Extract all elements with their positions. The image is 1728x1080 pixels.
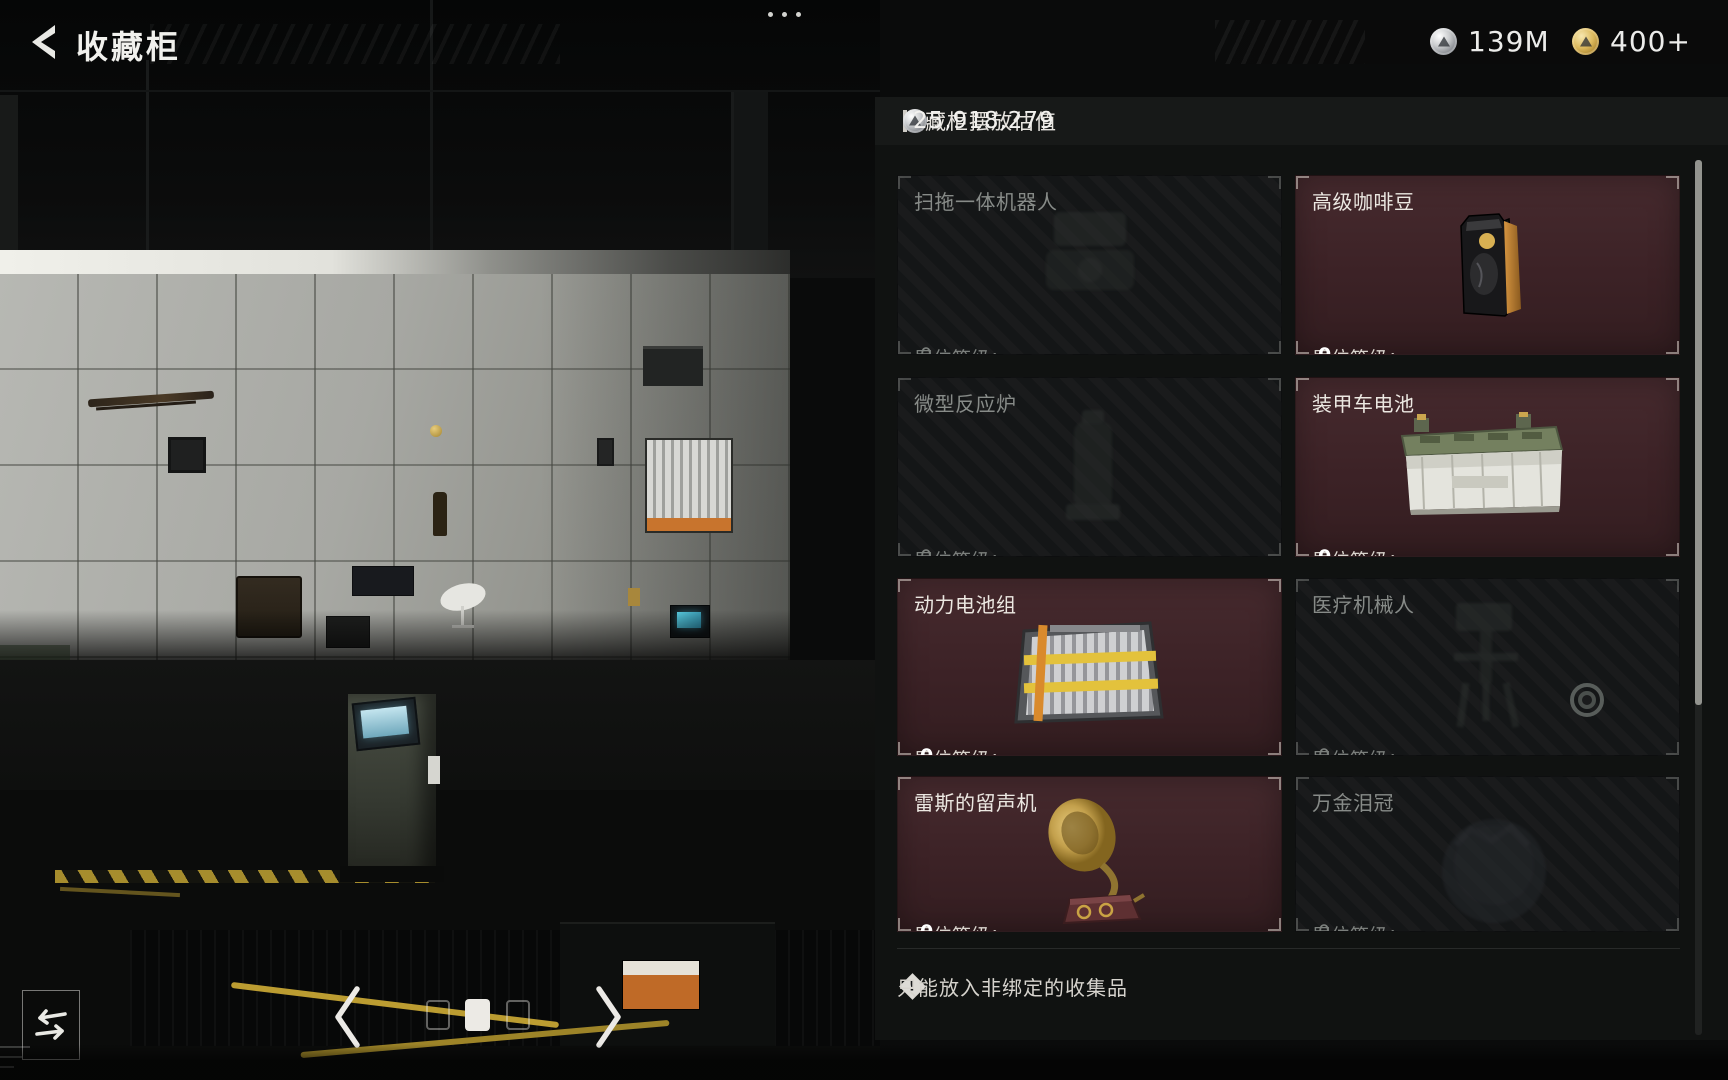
item-name: 高级咖啡豆 [1312,186,1415,215]
collection-item-card[interactable]: 动力电池组 展位等级：0 [897,578,1282,756]
collection-panel: 收藏柜摆放估值 25,918,279 扫拖一体机器人 展位等级：0 高级咖啡豆 [875,97,1728,1040]
collection-item-card[interactable]: 万金泪冠 展位等级：0 [1295,776,1680,932]
collection-item-card[interactable]: 微型反应炉 展位等级：0 [897,377,1282,557]
currency-stripe-decor [1215,20,1365,64]
back-button[interactable] [24,20,68,64]
wall-bottom-shadow [0,610,790,662]
collection-value: 25,918,279 [913,108,1055,134]
kiosk-tag [428,756,440,784]
power-battery-pack-image [1010,619,1168,729]
collection-item-card[interactable]: 扫拖一体机器人 展位等级：0 [897,175,1282,355]
carousel-page-indicator[interactable] [506,1000,530,1030]
item-name: 雷斯的留声机 [914,787,1037,816]
gold-amount: 400+ [1610,25,1691,58]
solar-panel-stripe [647,518,731,531]
chevron-left-icon [24,20,68,64]
gramophone-image [1040,797,1152,932]
scrollbar-thumb[interactable] [1695,160,1702,705]
footer-divider [897,948,1680,949]
coin-emblem [1580,36,1592,46]
collection-item-card[interactable]: 装甲车电池 展位等级：0 [1295,377,1680,557]
scene-wall-strip [0,95,18,250]
wall-item-solar-panel [645,438,733,533]
swap-arrows-icon [32,1005,70,1045]
scene-light-band [0,250,790,274]
coffee-bag-image [1447,208,1529,320]
item-name: 万金泪冠 [1312,787,1394,816]
poster-header [623,961,699,975]
gold-coin-icon [1572,28,1599,55]
wall-item-bottle [433,492,447,536]
item-name: 医疗机械人 [1312,589,1415,618]
more-options-icon[interactable] [758,6,814,24]
scene-seam [0,90,880,92]
kiosk-screen-glow [360,706,409,739]
chevron-right-icon [594,984,624,1050]
chevron-left-icon [332,984,362,1050]
carousel-page-indicator[interactable] [426,1000,450,1030]
panel-header: 收藏柜摆放估值 25,918,279 [875,97,1728,145]
currency-silver[interactable]: 139M [1430,24,1560,60]
collection-cabinet-screen: 收藏柜 139M 400+ 收藏柜摆放估值 25,918,279 扫拖一体机器人… [0,0,1728,1080]
warning-poster [622,960,700,1010]
panel-scrollbar[interactable] [1695,160,1702,1035]
silver-coin-icon [1430,28,1457,55]
wall-item-dark-box [643,346,703,386]
wall-item-frame [168,437,206,473]
collection-item-card[interactable]: 雷斯的留声机 展位等级：0 [897,776,1282,932]
silver-amount: 139M [1468,25,1550,58]
robot-vacuum-ghost-image [1036,204,1152,308]
collection-item-card[interactable]: 高级咖啡豆 展位等级：0 [1295,175,1680,355]
wall-item-portrait [597,438,614,466]
page-title: 收藏柜 [76,22,181,68]
armored-vehicle-battery-image [1392,412,1568,516]
carousel-page-indicator-active[interactable] [465,999,490,1031]
carousel-prev-button[interactable] [332,984,362,1050]
scene-ceiling-panel [734,92,768,264]
scene-floor [0,660,880,790]
ring-emblem-icon [1568,681,1606,719]
warning-text: 只能放入非绑定的收集品 [897,972,1128,1001]
footer-warning: ! 只能放入非绑定的收集品 [897,971,1497,1001]
coin-emblem [1438,36,1450,46]
carousel-next-button[interactable] [594,984,624,1050]
kiosk-screen [352,697,421,751]
kiosk-base [340,866,444,882]
micro-reactor-ghost-image [1048,404,1138,536]
currency-gold[interactable]: 400+ [1572,24,1712,60]
golden-crown-ghost-image [1416,805,1566,929]
status-bar: 37ms CN UID:189638274832594739206 202603… [0,1044,1728,1080]
wall-item-pocket-watch [430,425,442,437]
scene-seam [430,0,433,265]
wall-item-radio [352,566,414,596]
wall-item-gold-trinket [628,588,640,606]
item-name: 动力电池组 [914,589,1017,618]
item-name: 微型反应炉 [914,388,1017,417]
collection-item-card[interactable]: 医疗机械人 展位等级：0 [1295,578,1680,756]
medical-robot-ghost-image [1436,589,1546,739]
